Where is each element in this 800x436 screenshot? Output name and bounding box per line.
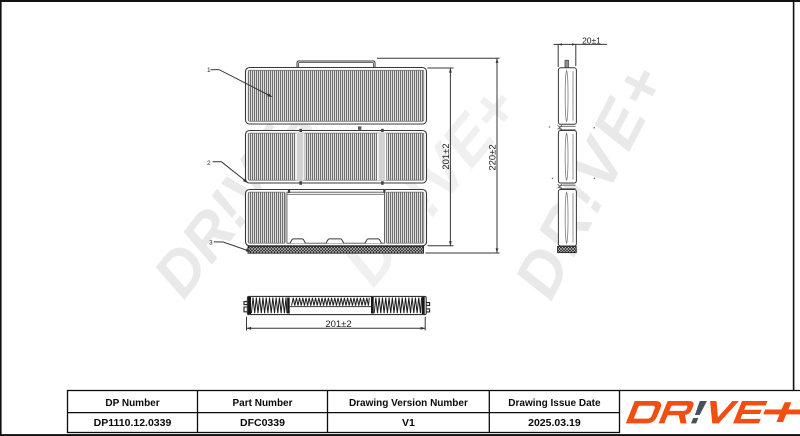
svg-text:201±2: 201±2: [441, 143, 452, 169]
svg-text:V1: V1: [402, 417, 415, 429]
svg-text:20±1: 20±1: [582, 35, 601, 45]
svg-text:2025.03.19: 2025.03.19: [528, 417, 581, 429]
svg-text:Drawing Issue Date: Drawing Issue Date: [508, 398, 601, 409]
svg-text:DP Number: DP Number: [105, 398, 159, 409]
svg-text:2: 2: [207, 160, 211, 167]
svg-text:DFC0339: DFC0339: [240, 417, 285, 429]
svg-text:Part Number: Part Number: [232, 398, 292, 409]
svg-text:DP1110.12.0339: DP1110.12.0339: [94, 417, 172, 429]
svg-text:Drawing Version Number: Drawing Version Number: [349, 398, 468, 409]
svg-text:1: 1: [207, 67, 211, 74]
svg-text:220±2: 220±2: [488, 144, 499, 170]
svg-text:201±2: 201±2: [325, 319, 351, 330]
svg-text:3: 3: [209, 240, 213, 247]
